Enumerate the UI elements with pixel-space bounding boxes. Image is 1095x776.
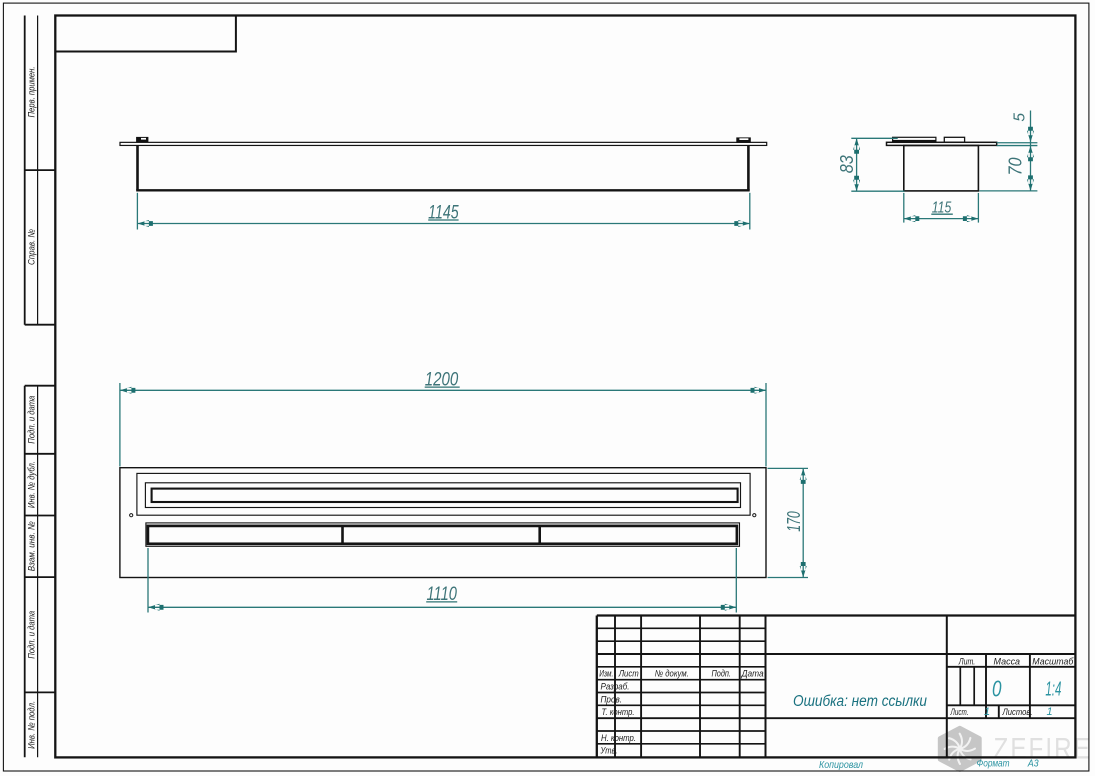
svg-text:Пров.: Пров. [601,694,623,704]
svg-text:Копировал: Копировал [819,759,863,771]
svg-text:Изм.: Изм. [599,669,613,679]
svg-text:1: 1 [1046,706,1052,718]
svg-text:Дата: Дата [741,669,764,679]
svg-text:Инв. № дубл.: Инв. № дубл. [27,461,38,508]
svg-text:83: 83 [836,155,857,174]
svg-text:Листов.: Листов. [1002,707,1033,717]
svg-text:Взам. инв. №: Взам. инв. № [27,521,38,571]
svg-text:Перв. примен.: Перв. примен. [27,67,38,118]
svg-text:Подп.: Подп. [711,669,731,679]
svg-text:Лист: Лист [618,669,639,679]
svg-text:Лит.: Лит. [958,656,975,666]
svg-text:1:4: 1:4 [1045,678,1061,701]
svg-text:1: 1 [984,706,990,718]
svg-text:Масштаб: Масштаб [1032,656,1074,666]
svg-text:Формат: Формат [977,758,1010,770]
svg-text:Подп. и дата: Подп. и дата [27,611,38,659]
svg-text:Т. контр.: Т. контр. [602,707,635,717]
svg-text:Подп. и дата: Подп. и дата [27,396,38,444]
svg-text:Разраб.: Разраб. [601,682,630,692]
svg-text:Ошибка: нет ссылки: Ошибка: нет ссылки [793,693,927,710]
svg-text:Справ. №: Справ. № [27,229,38,265]
svg-text:5: 5 [1011,113,1028,122]
svg-text:Утв.: Утв. [600,746,618,756]
svg-text:70: 70 [1004,157,1025,176]
svg-text:Масса: Масса [994,656,1021,666]
svg-text:Лист.: Лист. [950,707,969,717]
svg-text:№ докум.: № докум. [655,669,689,679]
svg-text:Н. контр.: Н. контр. [601,733,636,743]
svg-text:Инв. № подл.: Инв. № подл. [27,701,38,749]
svg-text:0: 0 [992,676,1002,702]
svg-text:170: 170 [783,511,804,532]
svg-text:А3: А3 [1027,758,1039,770]
